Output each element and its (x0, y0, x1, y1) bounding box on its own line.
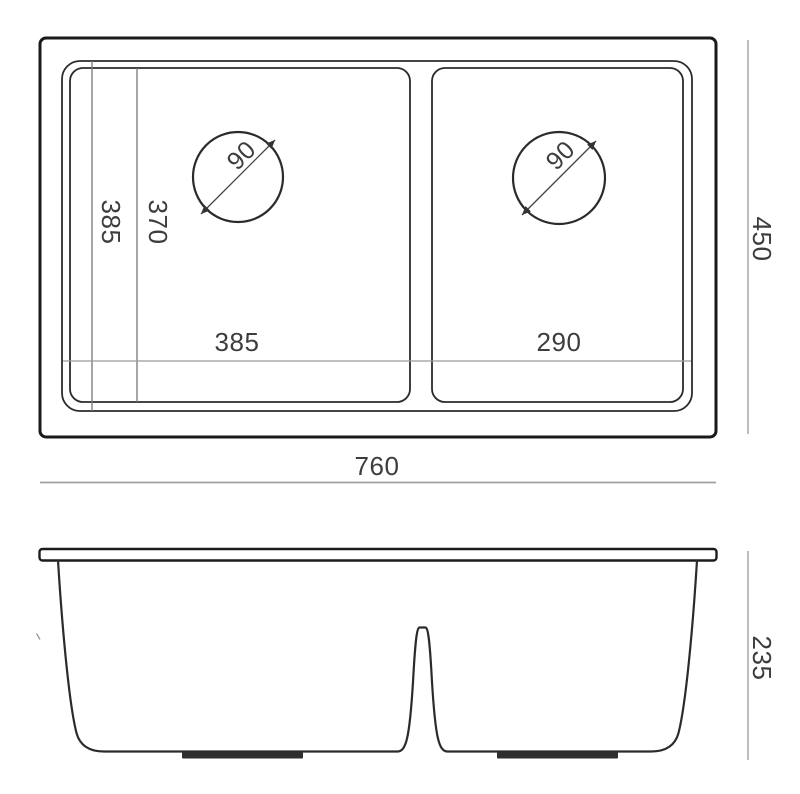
front-view-outline (37, 549, 749, 760)
front-body-profile (58, 561, 697, 752)
rim-depth-label: 385 (98, 200, 124, 245)
front-rim-bar (40, 549, 717, 561)
sink-dimension-drawing: 385 370 90 90 385 290 760 450 235 (0, 0, 800, 794)
tick-mark (37, 634, 41, 640)
drawing-line-art (0, 0, 800, 794)
left-foot-pad (182, 752, 303, 759)
height-label: 235 (749, 636, 775, 681)
sink-outer-rect (40, 38, 716, 437)
right-bowl-width-label: 290 (537, 329, 582, 355)
top-view-outline (40, 38, 716, 437)
bowl-depth-label: 370 (145, 200, 171, 245)
overall-depth-label: 450 (749, 217, 775, 262)
left-bowl-width-label: 385 (215, 329, 260, 355)
overall-width-label: 760 (355, 453, 400, 479)
right-foot-pad (497, 752, 618, 759)
